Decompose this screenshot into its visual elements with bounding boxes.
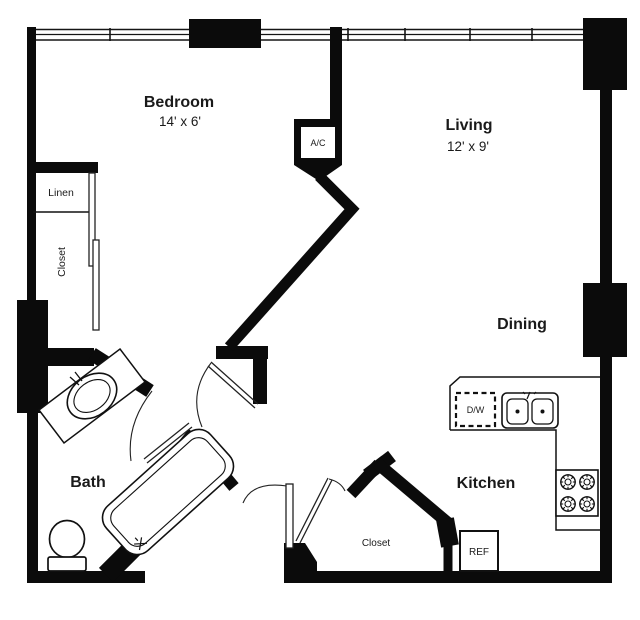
toilet-tank: [48, 557, 86, 571]
window-header-block: [189, 19, 261, 48]
hall-wall-vertical: [253, 357, 267, 404]
room-label-dining: Dining: [497, 316, 547, 333]
closet-bottom-wall: [46, 348, 94, 366]
linen-top-wall: [27, 162, 98, 173]
label-linen-closet: Linen: [48, 187, 74, 199]
top-right-column: [583, 18, 627, 90]
closet-corner: [445, 519, 450, 546]
kitchen-sink: [502, 392, 558, 428]
bath-left-wall: [27, 411, 38, 583]
right-wall-upper: [600, 88, 612, 285]
right-wall-lower: [600, 355, 612, 583]
floor-plan: Bedroom 14' x 6' Living 12' x 9' Dining …: [0, 0, 640, 620]
label-bedroom-closet: Closet: [56, 247, 68, 277]
room-label-kitchen: Kitchen: [457, 475, 516, 492]
left-pillar: [17, 300, 48, 413]
entry-door-leaf: [286, 484, 293, 548]
room-dims-bedroom: 14' x 6': [159, 114, 201, 129]
closet-sliding-door-2: [93, 240, 99, 330]
ac-wall: [330, 27, 342, 124]
room-dims-living: 12' x 9': [447, 139, 489, 154]
bath-bottom-wall: [27, 571, 145, 583]
toilet-bowl: [50, 521, 85, 558]
label-ac-unit: A/C: [310, 138, 326, 148]
room-label-bath: Bath: [70, 474, 106, 491]
label-entry-closet: Closet: [362, 538, 391, 549]
right-column: [583, 283, 627, 357]
floor-plan-page: Bedroom 14' x 6' Living 12' x 9' Dining …: [0, 0, 640, 620]
label-dishwasher: D/W: [467, 405, 485, 415]
label-refrigerator: REF: [469, 547, 489, 558]
room-label-bedroom: Bedroom: [144, 94, 214, 111]
stove: [556, 470, 598, 516]
room-label-living: Living: [445, 117, 492, 134]
